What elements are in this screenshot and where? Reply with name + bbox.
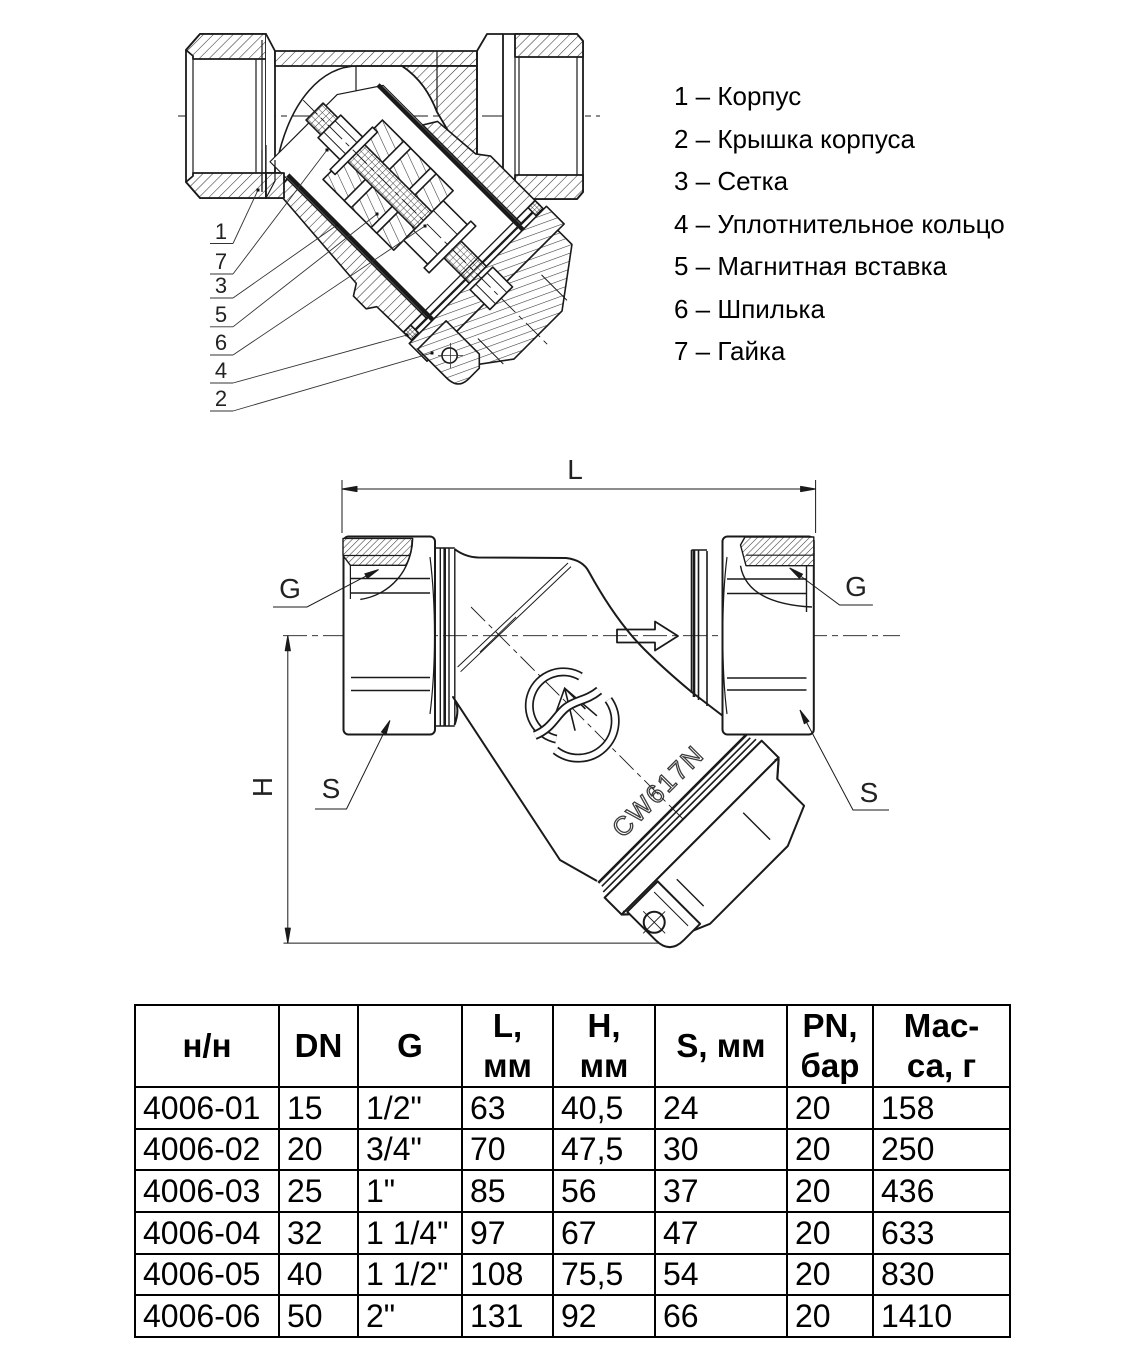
svg-text:L: L xyxy=(567,454,583,485)
svg-text:2: 2 xyxy=(215,386,227,411)
svg-text:5: 5 xyxy=(215,302,227,327)
svg-text:6: 6 xyxy=(215,330,227,355)
svg-text:G: G xyxy=(845,571,867,602)
svg-text:7: 7 xyxy=(215,249,227,274)
svg-text:1: 1 xyxy=(215,219,227,244)
svg-text:4: 4 xyxy=(215,358,227,383)
svg-text:G: G xyxy=(279,573,301,604)
svg-text:S: S xyxy=(322,773,341,804)
svg-text:H: H xyxy=(247,777,278,797)
svg-text:S: S xyxy=(860,777,879,808)
svg-text:3: 3 xyxy=(215,273,227,298)
